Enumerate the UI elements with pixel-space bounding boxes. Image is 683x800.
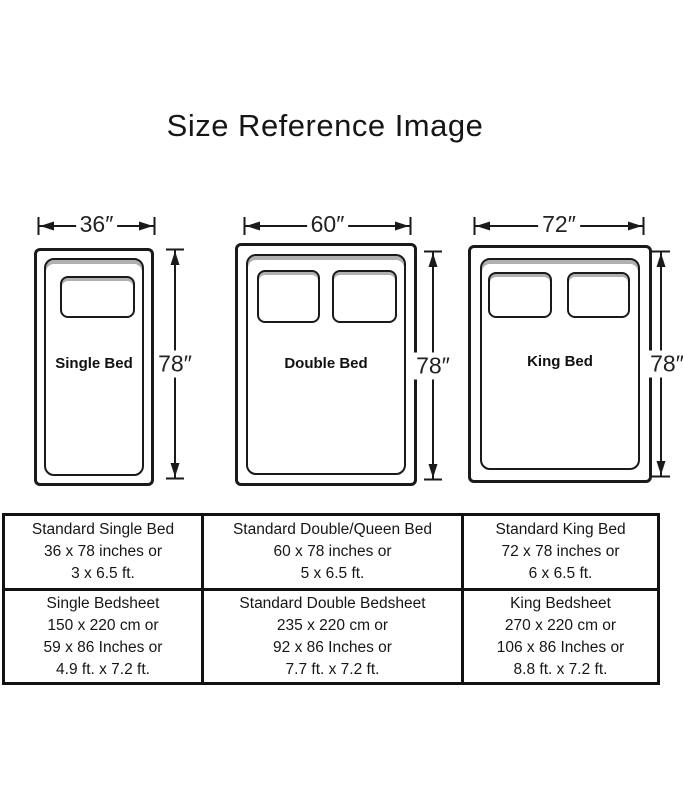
cell-line: Standard Single Bed	[32, 519, 174, 541]
cell-line: 5 x 6.5 ft.	[301, 563, 365, 585]
cell-standard-double-bedsheet: Standard Double Bedsheet 235 x 220 cm or…	[201, 588, 461, 682]
double-bed-height-dimension: 78″	[421, 250, 445, 481]
single-bed-width-dimension: 36″	[37, 214, 156, 238]
mattress-double: Double Bed	[246, 254, 406, 475]
cell-line: 8.8 ft. x 7.2 ft.	[514, 659, 608, 681]
cell-line: 6 x 6.5 ft.	[529, 563, 593, 585]
cell-line: Standard Double/Queen Bed	[233, 519, 432, 541]
page-title: Size Reference Image	[0, 108, 650, 144]
pillow	[60, 276, 135, 318]
pillow	[488, 272, 552, 318]
cell-line: Standard King Bed	[495, 519, 625, 541]
cell-line: 4.9 ft. x 7.2 ft.	[56, 659, 150, 681]
mattress-king: King Bed	[480, 258, 640, 470]
cell-standard-double-queen-bed: Standard Double/Queen Bed 60 x 78 inches…	[201, 516, 461, 588]
king-bed-width-label: 72″	[538, 211, 580, 238]
cell-standard-king-bed: Standard King Bed 72 x 78 inches or 6 x …	[461, 516, 657, 588]
single-bed-height-dimension: 78″	[163, 248, 187, 480]
cell-line: 7.7 ft. x 7.2 ft.	[286, 659, 380, 681]
mattress-single: Single Bed	[44, 258, 144, 476]
pillow	[332, 270, 397, 323]
cell-line: King Bedsheet	[510, 593, 611, 615]
size-table: Standard Single Bed 36 x 78 inches or 3 …	[2, 513, 660, 685]
king-bed-height-label: 78″	[646, 351, 683, 378]
cell-single-bedsheet: Single Bedsheet 150 x 220 cm or 59 x 86 …	[5, 588, 201, 682]
cell-line: 72 x 78 inches or	[501, 541, 619, 563]
single-bed-width-label: 36″	[76, 211, 118, 238]
cell-standard-single-bed: Standard Single Bed 36 x 78 inches or 3 …	[5, 516, 201, 588]
cell-line: Standard Double Bedsheet	[239, 593, 425, 615]
cell-line: 59 x 86 Inches or	[44, 637, 163, 659]
size-reference-page: Size Reference Image 36″ Single Bed	[0, 0, 683, 800]
king-bed-width-dimension: 72″	[473, 214, 645, 238]
cell-line: 150 x 220 cm or	[47, 615, 158, 637]
double-bed-width-dimension: 60″	[243, 214, 412, 238]
double-bed-name-label: Double Bed	[248, 355, 404, 372]
cell-line: 36 x 78 inches or	[44, 541, 162, 563]
single-bed-height-label: 78″	[154, 351, 196, 378]
bed-outline-double: Double Bed	[235, 243, 417, 486]
bed-outline-single: Single Bed	[34, 248, 154, 486]
pillow	[257, 270, 320, 323]
double-bed-height-label: 78″	[412, 352, 454, 379]
cell-line: 270 x 220 cm or	[505, 615, 616, 637]
cell-line: 60 x 78 inches or	[273, 541, 391, 563]
cell-line: 92 x 86 Inches or	[273, 637, 392, 659]
bed-outline-king: King Bed	[468, 245, 652, 483]
king-bed-height-dimension: 78″	[649, 250, 673, 478]
cell-line: 106 x 86 Inches or	[497, 637, 625, 659]
pillow	[567, 272, 630, 318]
double-bed-width-label: 60″	[307, 211, 349, 238]
king-bed-name-label: King Bed	[482, 353, 638, 370]
cell-line: 3 x 6.5 ft.	[71, 563, 135, 585]
cell-line: 235 x 220 cm or	[277, 615, 388, 637]
cell-king-bedsheet: King Bedsheet 270 x 220 cm or 106 x 86 I…	[461, 588, 657, 682]
single-bed-name-label: Single Bed	[46, 355, 142, 372]
cell-line: Single Bedsheet	[47, 593, 160, 615]
